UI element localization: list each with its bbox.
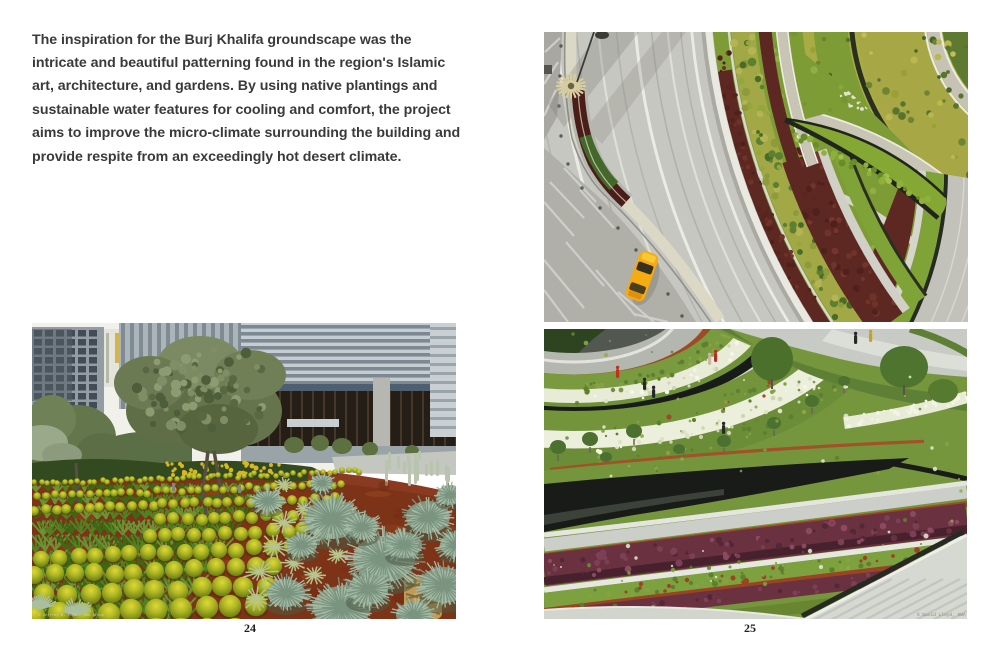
svg-text:© Jeffrey M. Todd / SWA Group: © Jeffrey M. Todd / SWA Group: [38, 613, 105, 618]
svg-text:© David Lloyd, SWA Group: © David Lloyd, SWA Group: [917, 611, 967, 618]
